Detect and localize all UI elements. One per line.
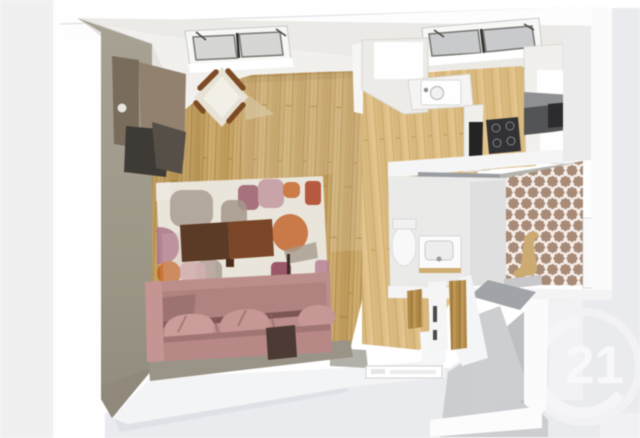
svg-text:21: 21	[565, 336, 624, 395]
